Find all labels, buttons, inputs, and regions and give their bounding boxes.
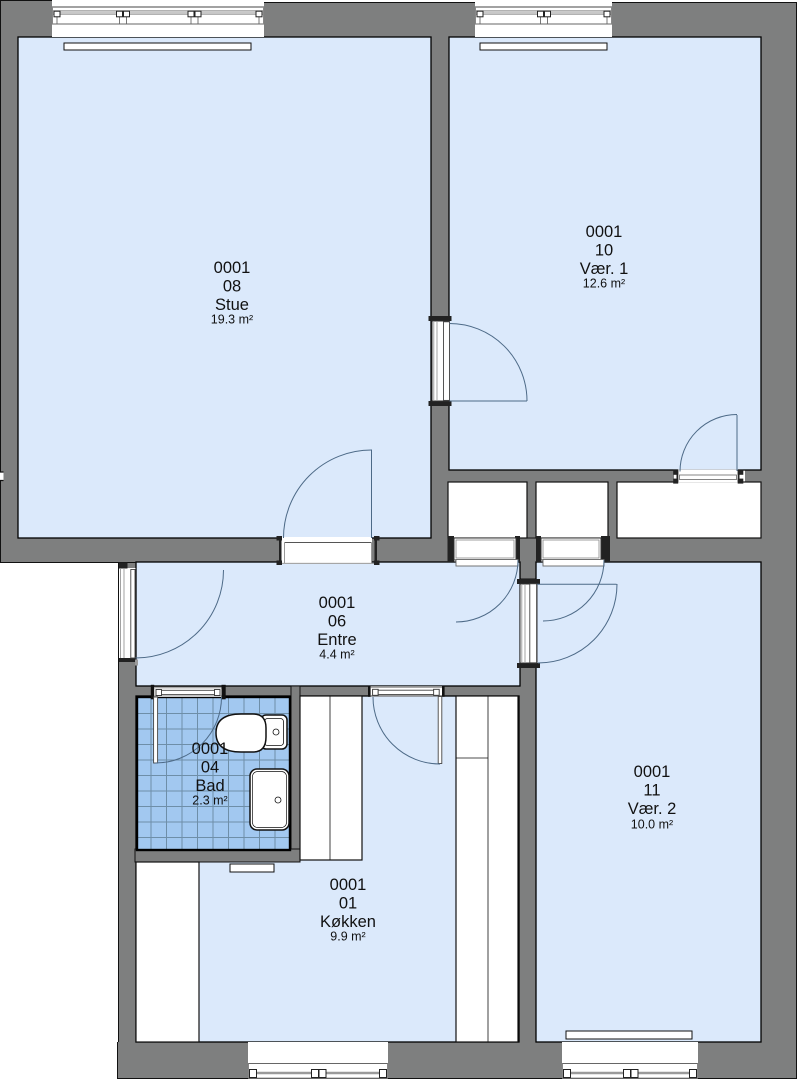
svg-text:Vær. 2: Vær. 2: [628, 800, 677, 818]
svg-text:Stue: Stue: [215, 296, 249, 314]
svg-text:Køkken: Køkken: [320, 913, 376, 931]
svg-text:0001: 0001: [330, 876, 367, 894]
svg-text:19.3 m²: 19.3 m²: [211, 313, 253, 327]
svg-text:01: 01: [339, 895, 357, 913]
svg-text:06: 06: [328, 613, 346, 631]
svg-text:0001: 0001: [634, 763, 671, 781]
svg-text:Vær. 1: Vær. 1: [580, 260, 629, 278]
svg-text:4.4 m²: 4.4 m²: [319, 648, 354, 662]
svg-text:Bad: Bad: [195, 777, 224, 795]
svg-text:0001: 0001: [214, 259, 251, 277]
svg-text:11: 11: [643, 782, 660, 800]
svg-text:2.3 m²: 2.3 m²: [192, 794, 227, 808]
svg-text:04: 04: [201, 759, 219, 777]
svg-text:0001: 0001: [319, 594, 356, 612]
svg-text:9.9 m²: 9.9 m²: [330, 930, 365, 944]
svg-text:Entre: Entre: [317, 631, 356, 649]
svg-text:12.6 m²: 12.6 m²: [583, 277, 625, 291]
svg-text:10: 10: [595, 242, 613, 260]
svg-text:0001: 0001: [586, 223, 623, 241]
svg-text:10.0 m²: 10.0 m²: [631, 818, 673, 832]
svg-text:0001: 0001: [192, 740, 229, 758]
svg-text:08: 08: [223, 278, 241, 296]
